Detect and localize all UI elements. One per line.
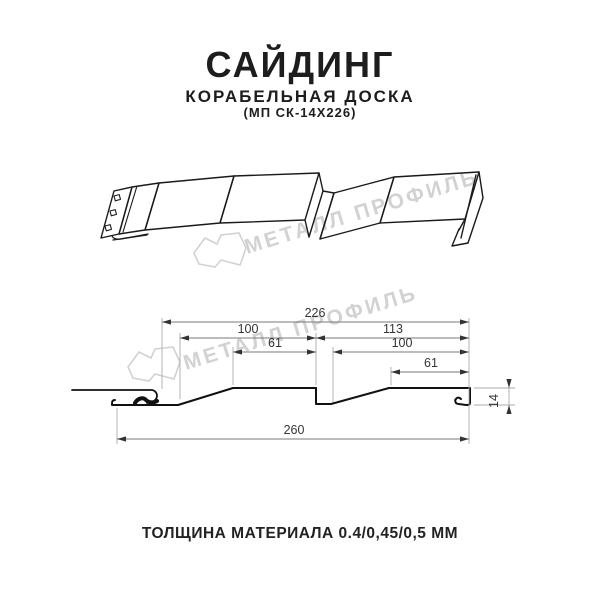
watermark-text-upper: МЕТАЛЛ ПРОФИЛЬ [242,166,482,259]
thickness-note: ТОЛЩИНА МАТЕРИАЛА 0.4/0,45/0,5 ММ [0,525,600,543]
dim-label-inner-left: 61 [268,336,282,350]
metall-profil-logo-icon [194,233,246,267]
dim-label-inner-right: 100 [392,336,413,350]
catalog-card: САЙДИНГ КОРАБЕЛЬНАЯ ДОСКА (МП СК-14Х226)… [0,0,600,600]
extension-lines [117,318,515,444]
dim-label-overall-bottom: 260 [284,423,305,437]
watermark-upper: МЕТАЛЛ ПРОФИЛЬ [194,166,482,267]
watermark-lower: МЕТАЛЛ ПРОФИЛЬ [128,282,421,381]
cross-section-view [72,388,470,405]
technical-drawing: МЕТАЛЛ ПРОФИЛЬ МЕТАЛЛ ПРОФИЛЬ [0,0,600,600]
dim-label-flat-right: 61 [424,356,438,370]
dim-label-upper-right: 113 [383,322,403,336]
dim-label-overall-top: 226 [305,306,326,320]
dim-label-upper-left: 100 [238,322,259,336]
dim-label-height: 14 [487,394,501,408]
metall-profil-logo-icon [128,347,180,381]
